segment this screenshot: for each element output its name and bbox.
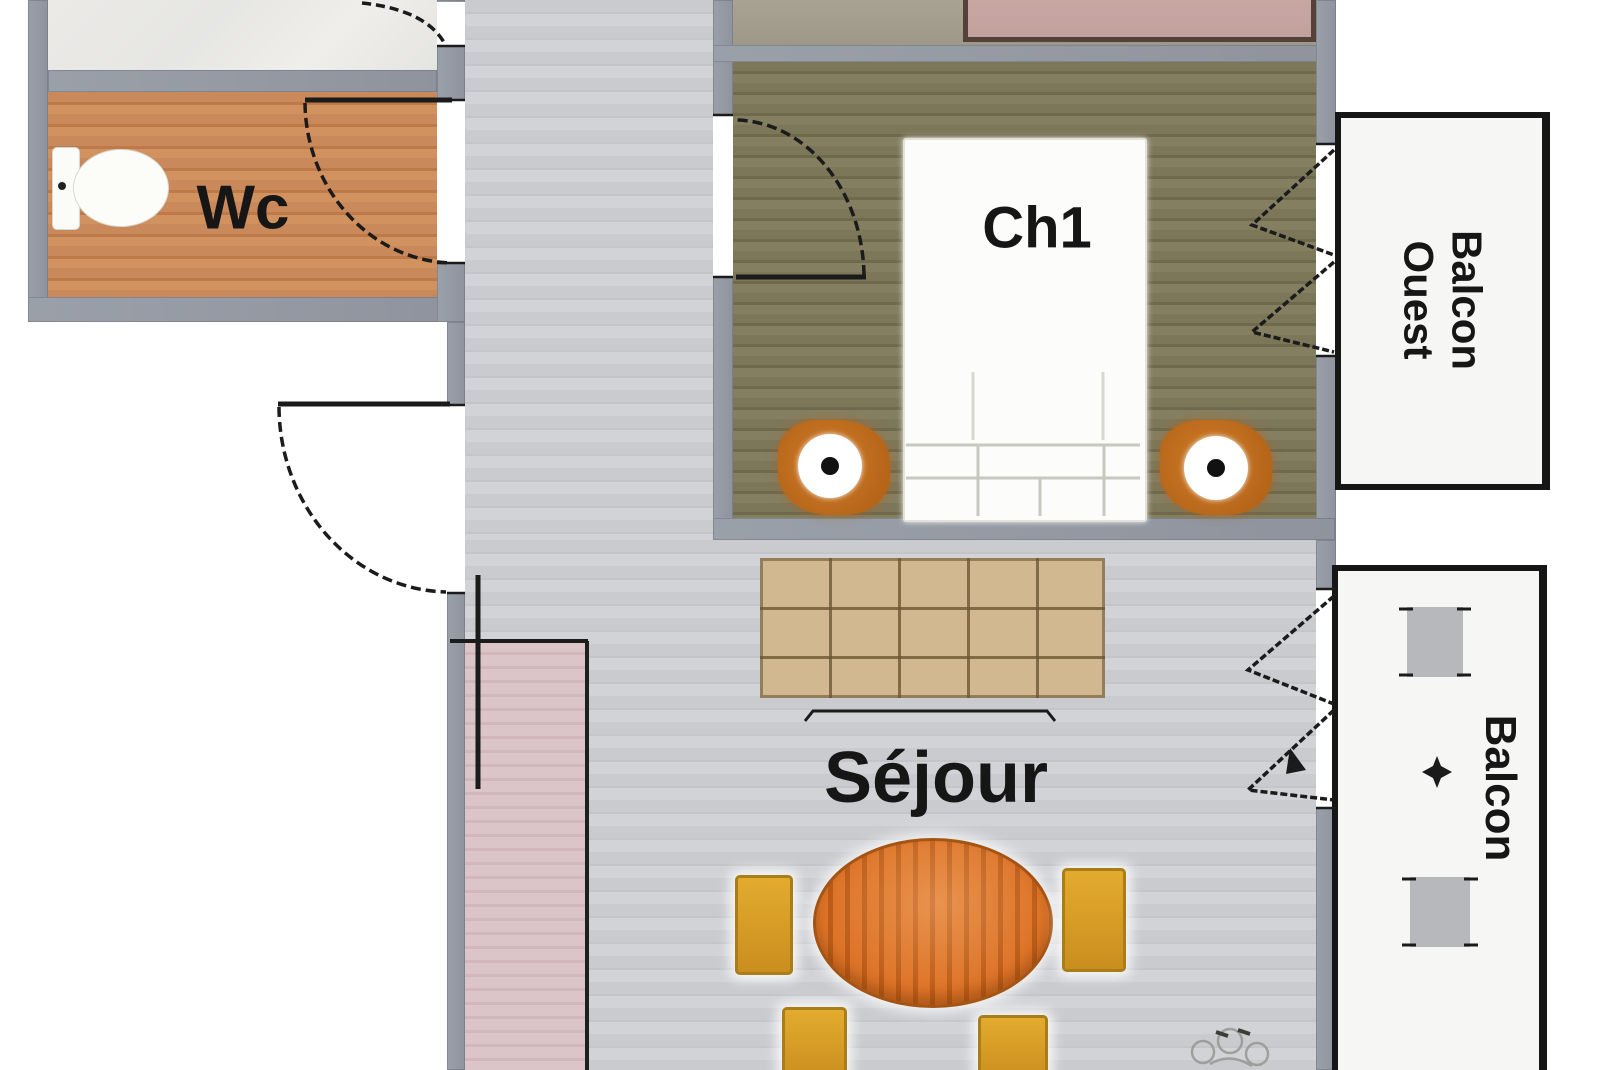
door-opening-ch1 [713, 115, 733, 277]
balcon-ouest-line1: Balcon [1442, 230, 1490, 370]
entry-pink-floor [465, 641, 589, 1070]
wall-wc-bottom [28, 297, 465, 322]
toilet-bowl [73, 149, 169, 227]
balcon-ouest-label: Balcon Ouest [1394, 230, 1491, 370]
balcon-ouest-line2: Ouest [1394, 230, 1442, 370]
ch1-label: Ch1 [982, 195, 1092, 262]
door-opening-bathroom [437, 2, 465, 46]
dining-chair-left [735, 875, 793, 975]
lamp-right-dot [1207, 459, 1225, 477]
dining-chair-bottom-left [782, 1007, 847, 1070]
door-opening-entrance [447, 405, 465, 593]
wall-ch1-top [713, 45, 1335, 62]
door-opening-wc [437, 100, 465, 263]
wall-bathroom-wc-divider [48, 70, 437, 92]
door-arc-entrance [279, 407, 446, 592]
wall-left-outer [28, 0, 48, 322]
dining-chair-bottom-right [978, 1015, 1048, 1070]
sejour-label: Séjour [824, 737, 1048, 819]
floor-plan-canvas: Wc Ch1 Séjour Balcon Ouest Balcon [0, 0, 1606, 1070]
pink-bed [963, 0, 1316, 42]
balcon-label: Balcon [1475, 715, 1525, 862]
lamp-left-dot [821, 457, 839, 475]
window-opening-ch1 [1316, 144, 1336, 356]
wc-label: Wc [197, 173, 290, 244]
dining-chair-right [1062, 868, 1126, 972]
sofa [760, 558, 1105, 698]
bathroom-floor [48, 0, 437, 70]
dining-table [813, 838, 1053, 1008]
toilet-button [58, 182, 66, 190]
